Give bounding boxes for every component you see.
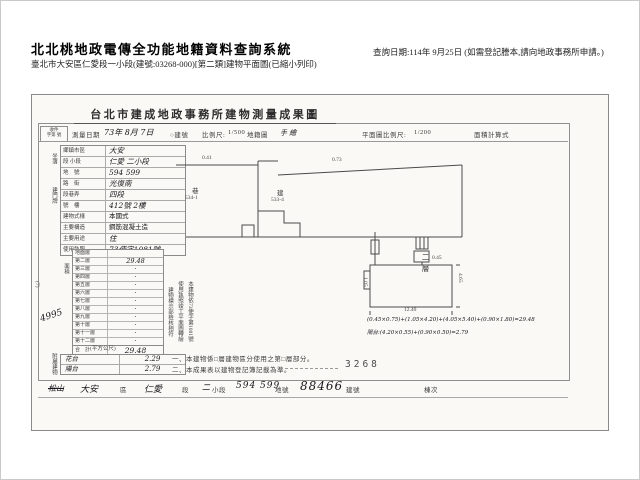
lower-plan-floor-label: 二層 (420, 253, 431, 281)
floor-area: · (108, 266, 163, 273)
upper-lot-left-no: 534-1 (185, 195, 198, 201)
upper-lot-right-no: 533-4 (271, 197, 284, 203)
lower-dim-left: 1.05 (362, 277, 368, 297)
system-title: 北北桃地政電傳全功能地籍資料查詢系統 (31, 39, 292, 58)
floor-area: · (108, 282, 163, 289)
floor-label: 第七層 (73, 298, 108, 305)
floor-row: 第六層· (73, 289, 163, 297)
floor-row: 第五層· (73, 281, 163, 289)
lower-plan-outline (370, 265, 452, 307)
floor-area: 29.48 (108, 258, 163, 265)
footer-lot-numbers: 594 599 (236, 381, 280, 391)
footer-building-number: 88466 (300, 379, 343, 393)
receipt-box: 收件 字第 號 (40, 126, 68, 142)
row-label: 地 號 (61, 168, 106, 178)
footer-struck-district: 松山 (48, 383, 64, 394)
upper-lot-right-char: 建 (277, 187, 284, 197)
upper-lot-left-char: 巷 (192, 185, 199, 195)
footer-district-value: 大安 (80, 382, 98, 395)
floor-row: 第四層· (73, 273, 163, 281)
row-label: 段 小段 (61, 157, 106, 167)
floor-label: 第五層 (73, 282, 108, 289)
floor-area: · (108, 306, 163, 313)
floor-row: 第三層· (73, 265, 163, 273)
area-calc-line-1: (0.45×0.75)+(1.05×4.20)+(4.05×5.40)+(0.9… (367, 317, 535, 323)
lower-dim-bottom: 12.40 (404, 307, 416, 313)
side-label-door: 建門牌 (50, 187, 58, 219)
upper-plan-building-notch (258, 211, 300, 237)
floor-row: 第十一層· (73, 329, 163, 337)
area-calc-line-2: 陽台:(4.20×0.55)+(0.90×0.50)=2.79 (367, 328, 468, 336)
row-label: 號 樓 (61, 201, 106, 211)
footer-lot-label: 地號 (275, 384, 289, 394)
floor-label: 第二層 (73, 258, 108, 265)
cert-column-2: 使用執照竣工平面圖轉繪 (176, 281, 184, 353)
floor-row: 地面層 (73, 250, 163, 257)
row-label: 鄉鎮市區 (61, 146, 106, 156)
side-label-floors: 面積 (62, 263, 70, 303)
note-line-2: 二、本成果表以建物登記簿記載為準。 (172, 364, 291, 374)
footer-building-number-label: 建號 (346, 384, 360, 394)
floor-label: 第四層 (73, 274, 108, 281)
floor-area: · (108, 290, 163, 297)
row-label: 主要用途 (61, 234, 106, 244)
floor-plan-drawings (162, 141, 602, 381)
floor-row: 第七層· (73, 297, 163, 305)
floor-label: 第十一層 (73, 330, 108, 337)
footer-dong-label: 棟次 (424, 384, 438, 394)
building-no-label: ○建號 (170, 129, 188, 139)
floor-area: · (108, 314, 163, 321)
approval-stamp-number: 3268 (345, 359, 380, 370)
area-calc-label: 面積計算式 (474, 129, 509, 139)
row-label: 主要構造 (61, 223, 106, 233)
footer-rule (38, 397, 568, 398)
lower-dim-top: 0.45 (432, 255, 442, 261)
floor-label: 地面層 (73, 250, 108, 257)
upper-dim-left: 0.41 (202, 155, 212, 161)
annex-use: 陽台 (61, 365, 120, 374)
side-label-location: 坐落 (50, 153, 58, 183)
map-scale-hand-note: 手 繪 (280, 128, 296, 138)
side-label-annex: 附屬建物 (50, 353, 58, 379)
map-scale-value: 1/500 (228, 129, 245, 136)
survey-date-value: 73年 8月 7日 (104, 127, 153, 138)
cert-column-1: 本建物依73使字第1081號 (186, 281, 194, 353)
floor-area: · (108, 322, 163, 329)
query-date-text: 查詢日期:114年 9月25日 (如需登記謄本,請向地政事務所申請。) (373, 46, 604, 58)
floor-label: 第三層 (73, 266, 108, 273)
floor-label: 第十層 (73, 322, 108, 329)
map-scale-label: 比例尺: (202, 129, 225, 139)
footer-section-label: 段 (182, 384, 189, 394)
plan-scale-label: 平面圖比例尺: (362, 129, 406, 139)
lower-plan-shaft-a-lines (420, 237, 424, 249)
map-scale-suffix: 地籍圖 (247, 129, 268, 139)
sheet-title: 台北市建成地政事務所建物測量成果圖 (74, 106, 336, 124)
floor-label: 第八層 (73, 306, 108, 313)
scanned-survey-sheet: 台北市建成地政事務所建物測量成果圖 收件 字第 號 測量日期 73年 8月 7日… (31, 94, 609, 431)
floor-area-table: 地面層 第二層29.48 第三層· 第四層· 第五層· 第六層· 第七層· 第八… (72, 249, 164, 356)
floor-row: 第九層· (73, 313, 163, 321)
floor-area (108, 250, 163, 257)
floor-label: 第九層 (73, 314, 108, 321)
margin-number: (7) (34, 281, 40, 287)
floor-area: · (108, 298, 163, 305)
lower-plan-shaft-a (416, 237, 428, 249)
stamp-underline (280, 359, 338, 369)
upper-plan-small-structure (242, 225, 254, 237)
footer-subsection-value: 二 (202, 382, 210, 393)
footer-subsection-label: 小段 (212, 384, 226, 394)
annex-use: 花台 (61, 355, 120, 364)
floor-area: · (108, 330, 163, 337)
cert-column-3: 建物標示部檢核相符 (166, 287, 174, 353)
footer-section-value: 仁愛 (144, 382, 162, 395)
upper-plan-slant-edge (278, 165, 462, 175)
floor-row: 第二層29.48 (73, 257, 163, 265)
floor-area: · (108, 274, 163, 281)
receipt-line2: 字第 號 (41, 132, 67, 137)
floor-row: 第八層· (73, 305, 163, 313)
plan-scale-value: 1/200 (414, 129, 431, 136)
query-result-page: 北北桃地政電傳全功能地籍資料查詢系統 查詢日期:114年 9月25日 (如需登記… (0, 0, 640, 480)
lower-dim-right: 4.65 (457, 273, 463, 295)
row-label: 路 街 (61, 179, 106, 189)
floor-row: 第十層· (73, 321, 163, 329)
area-unit-note: (平方公尺) (90, 344, 116, 352)
floor-label: 第六層 (73, 290, 108, 297)
survey-date-label: 測量日期 (72, 129, 100, 139)
floor-row: 第十二層· (73, 337, 163, 345)
row-label: 段巷弄 (61, 190, 106, 200)
upper-dim-right: 0.73 (332, 157, 342, 163)
row-label: 建物式樣 (61, 212, 106, 222)
document-subtitle: 臺北市大安區仁愛段一小段(建號:03268-000)[第二類]建物平面圖(已縮小… (31, 58, 317, 70)
floor-area: · (108, 338, 163, 345)
footer-district-label: 區 (120, 384, 127, 394)
